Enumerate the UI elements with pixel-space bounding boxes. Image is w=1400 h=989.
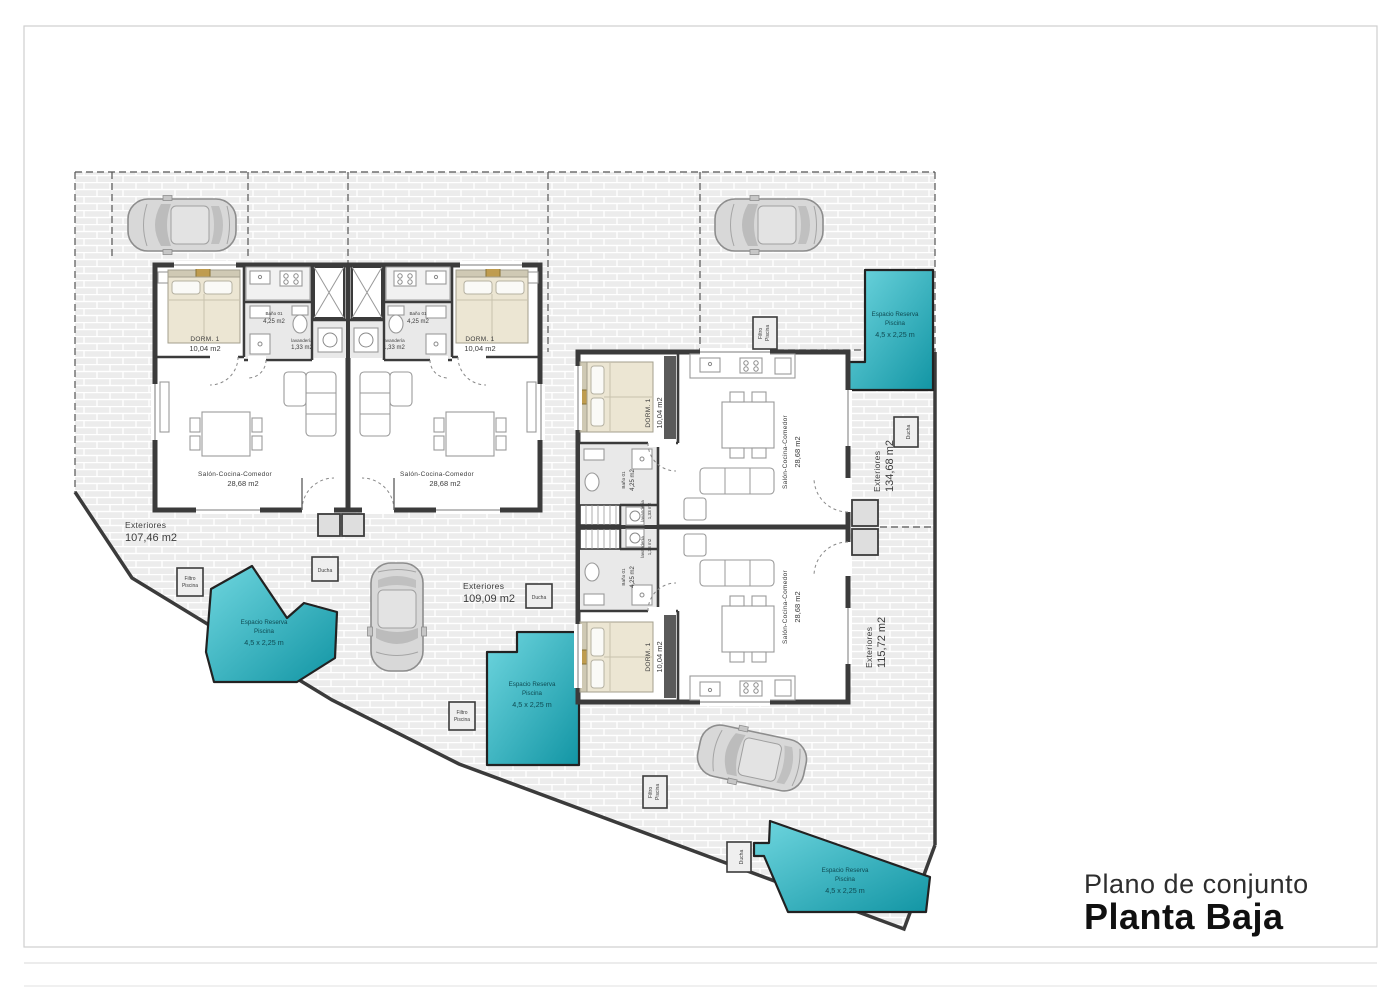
bath-label: Baño 01 bbox=[409, 311, 427, 316]
svg-text:Espacio Reserva: Espacio Reserva bbox=[872, 311, 919, 318]
bath-area: 4,25 m2 bbox=[630, 469, 636, 491]
laundry-label: lavandería bbox=[640, 500, 645, 522]
pool-filter-box bbox=[177, 568, 203, 596]
porch-planter bbox=[342, 514, 364, 536]
living-area: 28,68 m2 bbox=[227, 479, 258, 488]
shower-label: Ducha bbox=[739, 850, 745, 865]
floor-plan-canvas: Filtro Piscina Filtro Piscina Filtro Pis… bbox=[0, 0, 1400, 989]
drawing-sheet: Filtro Piscina Filtro Piscina Filtro Pis… bbox=[0, 0, 1400, 989]
laundry-area: 1,33 m2 bbox=[383, 345, 405, 351]
pool-filter-box bbox=[449, 702, 475, 730]
exterior-area: 134,68 m2 bbox=[884, 440, 896, 492]
plan-title: Planta Baja bbox=[1084, 896, 1284, 937]
bath-label: Baño 01 bbox=[621, 471, 626, 489]
filter-label: Filtro bbox=[184, 576, 195, 582]
exterior-label: Exteriores bbox=[864, 627, 874, 668]
laundry-area: 1,33 m2 bbox=[647, 538, 652, 555]
bedroom-area: 10,04 m2 bbox=[655, 397, 664, 428]
living-area: 28,68 m2 bbox=[793, 591, 802, 622]
living-label: Salón-Cocina-Comedor bbox=[782, 415, 789, 489]
filter-label: Filtro bbox=[456, 710, 467, 716]
bedroom-area: 10,04 m2 bbox=[189, 344, 220, 353]
laundry-area: 1,33 m2 bbox=[291, 345, 313, 351]
bedroom-area: 10,04 m2 bbox=[464, 344, 495, 353]
exterior-label: Exteriores bbox=[125, 520, 166, 530]
filter-label: Piscina bbox=[655, 784, 661, 800]
shower-label: Ducha bbox=[318, 568, 333, 574]
living-label: Salón-Cocina-Comedor bbox=[400, 471, 474, 478]
porch-planter bbox=[318, 514, 340, 536]
plan-subtitle: Plano de conjunto bbox=[1084, 869, 1309, 899]
bedroom-area: 10,04 m2 bbox=[655, 641, 664, 672]
bath-label: Baño 01 bbox=[265, 311, 283, 316]
svg-text:Piscina: Piscina bbox=[885, 320, 906, 327]
side-planter bbox=[852, 529, 878, 555]
filter-label: Piscina bbox=[454, 717, 470, 723]
svg-text:Piscina: Piscina bbox=[254, 628, 275, 635]
title-block: Plano de conjunto Planta Baja bbox=[1084, 869, 1309, 937]
svg-text:4,5 x 2,25 m: 4,5 x 2,25 m bbox=[244, 638, 284, 647]
side-planter bbox=[852, 500, 878, 526]
exterior-label: Exteriores bbox=[872, 451, 882, 492]
svg-text:Espacio Reserva: Espacio Reserva bbox=[822, 867, 869, 874]
bath-area: 4,25 m2 bbox=[407, 319, 429, 325]
exterior-label: Exteriores bbox=[463, 581, 504, 591]
laundry-label: lavandería bbox=[291, 338, 313, 343]
left-building bbox=[151, 261, 545, 536]
svg-text:Piscina: Piscina bbox=[522, 690, 543, 697]
car-icon bbox=[128, 196, 236, 255]
svg-text:Espacio Reserva: Espacio Reserva bbox=[509, 681, 556, 688]
bath-area: 4,25 m2 bbox=[630, 566, 636, 588]
car-icon bbox=[368, 563, 427, 671]
exterior-area: 107,46 m2 bbox=[125, 532, 177, 544]
bath-area: 4,25 m2 bbox=[263, 319, 285, 325]
laundry-label: lavandería bbox=[640, 536, 645, 558]
living-label: Salón-Cocina-Comedor bbox=[198, 471, 272, 478]
exterior-area: 109,09 m2 bbox=[463, 593, 515, 605]
filter-label: Piscina bbox=[182, 583, 198, 589]
filter-label: Piscina bbox=[765, 325, 771, 341]
pool-shape-middle bbox=[487, 632, 579, 765]
living-label: Salón-Cocina-Comedor bbox=[782, 570, 789, 644]
bedroom-label: DORM. 1 bbox=[645, 398, 652, 427]
svg-text:Piscina: Piscina bbox=[835, 876, 856, 883]
bedroom-label: DORM. 1 bbox=[465, 336, 494, 343]
laundry-area: 1,33 m2 bbox=[647, 502, 652, 519]
car-icon bbox=[715, 196, 823, 255]
bedroom-label: DORM. 1 bbox=[645, 642, 652, 671]
filter-label: Filtro bbox=[648, 787, 654, 798]
exterior-area: 115,72 m2 bbox=[876, 617, 888, 668]
laundry-label: lavandería bbox=[383, 338, 405, 343]
living-area: 28,68 m2 bbox=[429, 479, 460, 488]
bedroom-label: DORM. 1 bbox=[190, 336, 219, 343]
svg-text:Espacio Reserva: Espacio Reserva bbox=[241, 619, 288, 626]
living-area: 28,68 m2 bbox=[793, 436, 802, 467]
svg-text:4,5 x 2,25 m: 4,5 x 2,25 m bbox=[512, 700, 552, 709]
filter-label: Filtro bbox=[758, 328, 764, 339]
shower-label: Ducha bbox=[906, 425, 912, 440]
shower-label: Ducha bbox=[532, 595, 547, 601]
svg-text:4,5 x 2,25 m: 4,5 x 2,25 m bbox=[825, 886, 865, 895]
bath-label: Baño 01 bbox=[621, 568, 626, 586]
svg-text:4,5 x 2,25 m: 4,5 x 2,25 m bbox=[875, 330, 915, 339]
right-building bbox=[574, 348, 878, 706]
